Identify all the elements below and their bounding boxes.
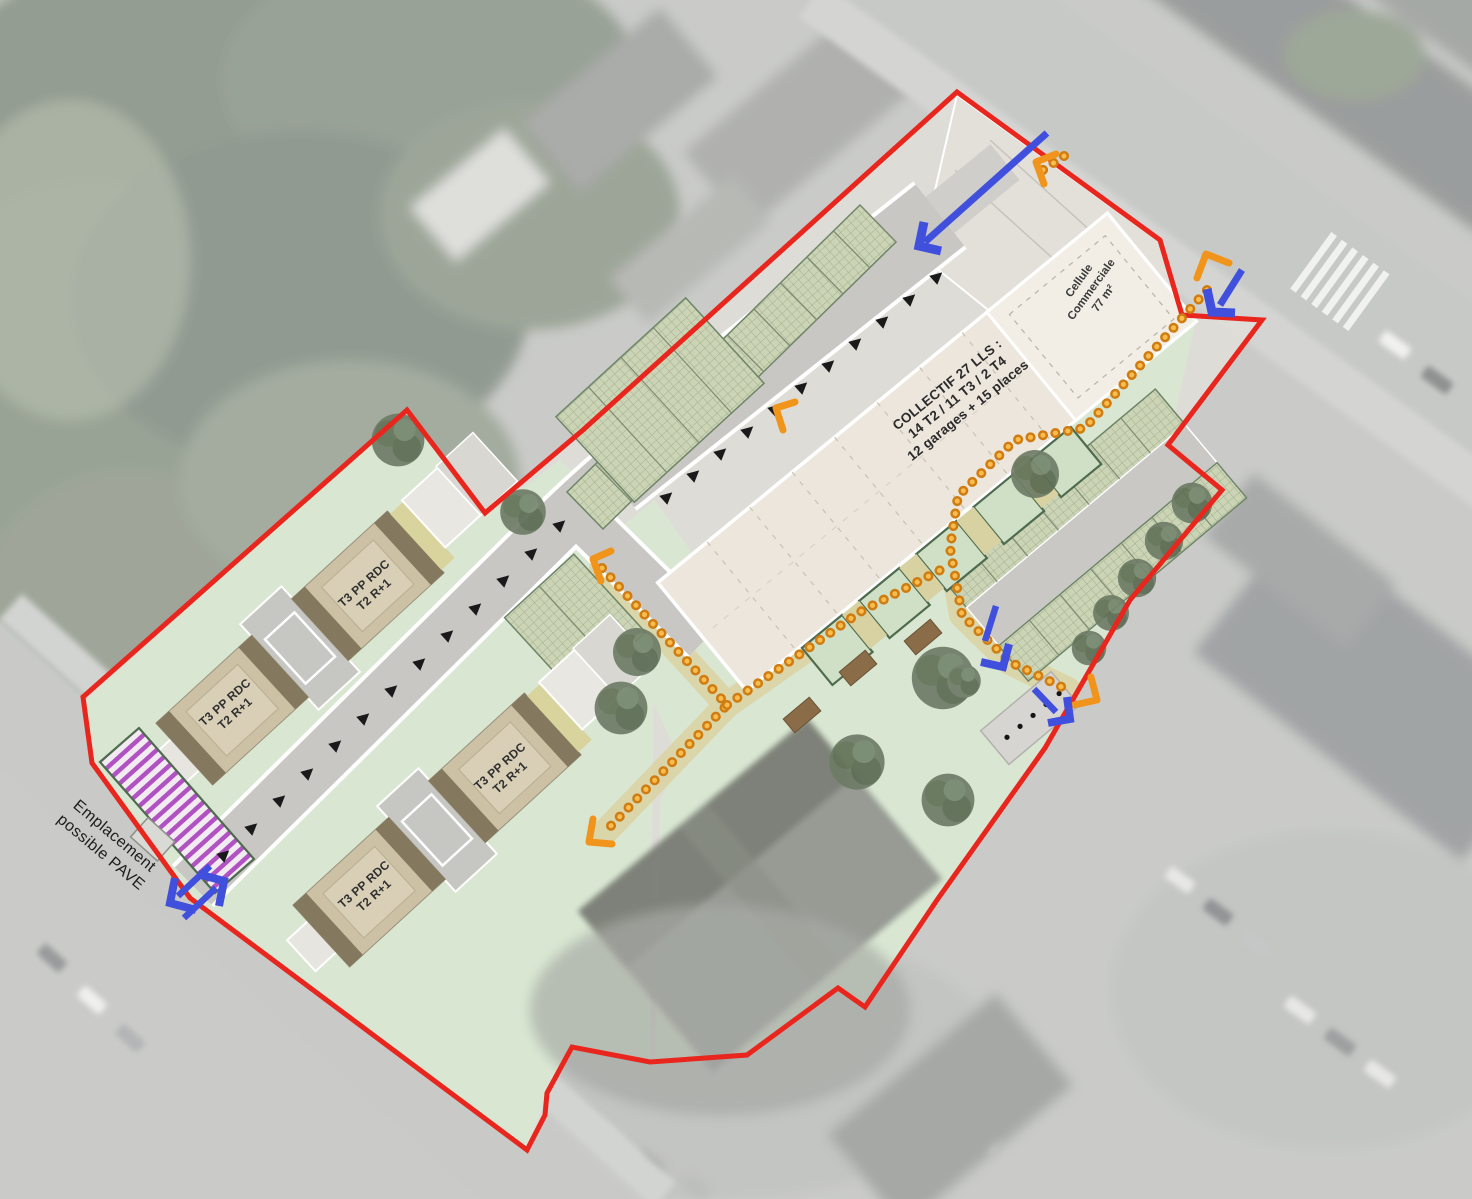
site-plan-canvas: COLLECTIF 27 LLS : 14 T2 / 11 T3 / 2 T4 … bbox=[0, 0, 1472, 1199]
site-plan-graphic bbox=[0, 0, 1472, 1199]
